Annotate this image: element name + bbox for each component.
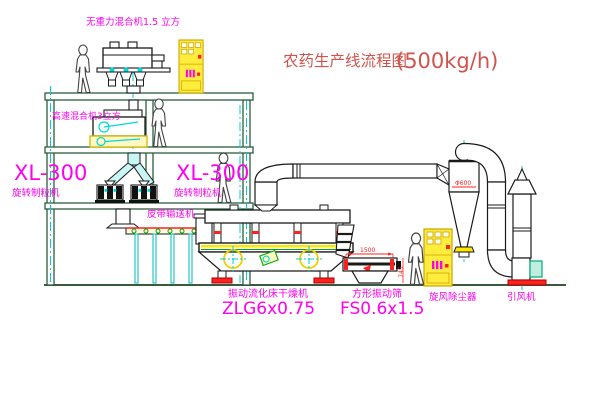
fluid-bed-dryer: [194, 205, 354, 283]
label-screen-model: FS0.6x1.5: [340, 299, 424, 319]
dim-cyclone-diameter: Φ600: [455, 180, 471, 187]
granulator-left: [95, 181, 125, 203]
label-top-mixer: 无重力混合机1.5 立方: [86, 16, 180, 28]
fan-housing: [512, 258, 530, 280]
granulator-right: [129, 181, 159, 203]
label-granulator-left-name: 旋转制粒机: [12, 187, 60, 199]
label-cyclone: 旋风除尘器: [429, 291, 477, 303]
drawing-title: 农药生产线流程图: [283, 52, 407, 70]
worker-figure: [408, 233, 423, 284]
fan-motor: [530, 261, 542, 277]
vibrating-screen: [343, 253, 403, 284]
exhaust-stack: [513, 194, 531, 258]
rain-cap: [508, 180, 536, 194]
worker-figure: [76, 45, 90, 93]
label-granulator-left-model: XL-300: [14, 161, 87, 185]
label-high-speed-mixer: 高速混合机3立方: [52, 110, 121, 122]
exhaust-duct: [255, 164, 449, 211]
fan-base: [508, 280, 546, 285]
dim-screen-height: 745: [398, 266, 405, 278]
label-granulator-right-name: 旋转制粒机: [174, 187, 222, 199]
label-fan: 引风机: [507, 291, 536, 303]
label-dryer-model: ZLG6x0.75: [222, 299, 315, 319]
label-granulator-right-model: XL-300: [176, 161, 249, 185]
dim-screen-length: 1500: [360, 247, 375, 254]
worker-figure: [152, 99, 166, 147]
drawing-title-capacity: (500kg/h): [396, 49, 498, 73]
control-cabinet-ground: [424, 229, 452, 286]
belt-conveyor: [107, 209, 200, 283]
process-flow-drawing: 无重力混合机1.5 立方 高速混合机3立方 XL-300 旋转制粒机 XL-30…: [0, 0, 600, 403]
cad-process-flow-screenshot: 无重力混合机1.5 立方 高速混合机3立方 XL-300 旋转制粒机 XL-30…: [0, 0, 600, 403]
control-cabinet-top: [179, 40, 203, 93]
label-belt-conveyor: 皮带输送机: [147, 208, 195, 220]
